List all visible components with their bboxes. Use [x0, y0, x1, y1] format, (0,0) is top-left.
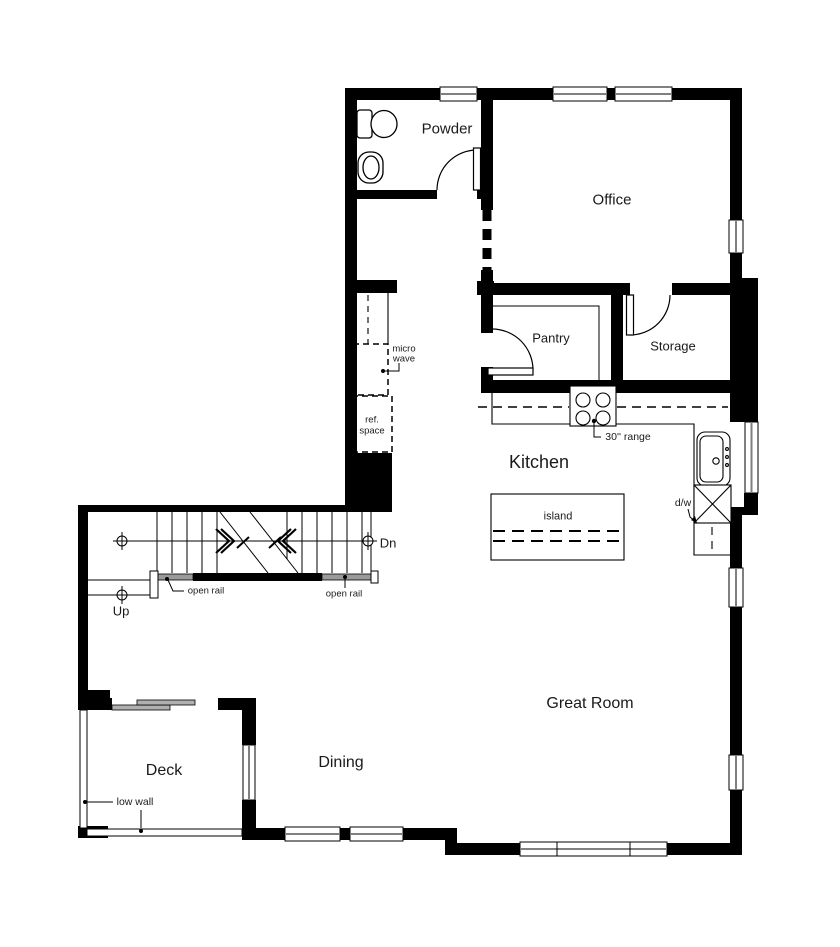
room-label-pantry: Pantry [532, 332, 570, 345]
annotation-island: island [544, 512, 573, 523]
pantry-door [488, 329, 533, 375]
open-rail-left [157, 574, 193, 580]
room-label-great-room: Great Room [546, 696, 633, 712]
annotation-low-wall: low wall [117, 797, 154, 808]
centerline-marker-up [113, 586, 131, 604]
storage-door [627, 295, 671, 335]
powder-window [440, 87, 477, 101]
office-window-top-left [553, 87, 607, 101]
great-room-window-right-lower [729, 755, 743, 790]
dining-window-bottom-1 [285, 827, 340, 841]
annotation-ref-space-line2: space [359, 426, 384, 436]
great-room-triple-window [520, 842, 667, 856]
annotation-microwave-line2: wave [393, 354, 415, 364]
sliding-door [112, 700, 195, 710]
powder-fixtures [357, 110, 397, 183]
open-rail-label-left: open rail [188, 586, 224, 596]
open-rail-label-right: open rail [326, 589, 362, 599]
powder-sink [358, 152, 383, 183]
annotation-dishwasher: d/w [675, 498, 691, 509]
low-wall-left [80, 710, 87, 828]
open-rail-leader-left [168, 580, 184, 591]
range [570, 386, 616, 437]
stair-label-up: Up [113, 605, 130, 618]
annotation-ref-space-line1: ref. [365, 415, 379, 425]
toilet [357, 110, 397, 138]
island [491, 494, 624, 560]
walls [78, 88, 758, 855]
kitchen-sink-window [745, 422, 758, 493]
newel-post [150, 571, 158, 598]
room-label-dining: Dining [318, 755, 363, 771]
floor-plan: Powder Office Pantry Storage Kitchen Gre… [0, 0, 840, 947]
powder-door [437, 148, 481, 190]
dining-window-bottom-2 [350, 827, 403, 841]
annotation-range: 30'' range [605, 432, 650, 443]
office-window-top-right [615, 87, 672, 101]
room-label-deck: Deck [146, 763, 182, 779]
room-label-office: Office [593, 193, 632, 208]
room-label-kitchen: Kitchen [509, 453, 569, 471]
low-wall-bottom [87, 829, 242, 836]
office-window-right [729, 220, 743, 253]
room-label-storage: Storage [650, 340, 696, 353]
stair-label-dn: Dn [380, 537, 397, 550]
centerline-marker-left [113, 532, 131, 550]
dining-window-left [243, 745, 255, 800]
room-label-powder: Powder [422, 122, 473, 137]
great-room-window-right-upper [729, 568, 743, 607]
rail-end-cap [371, 571, 378, 583]
kitchen-sink [697, 432, 730, 486]
windows [243, 87, 758, 856]
